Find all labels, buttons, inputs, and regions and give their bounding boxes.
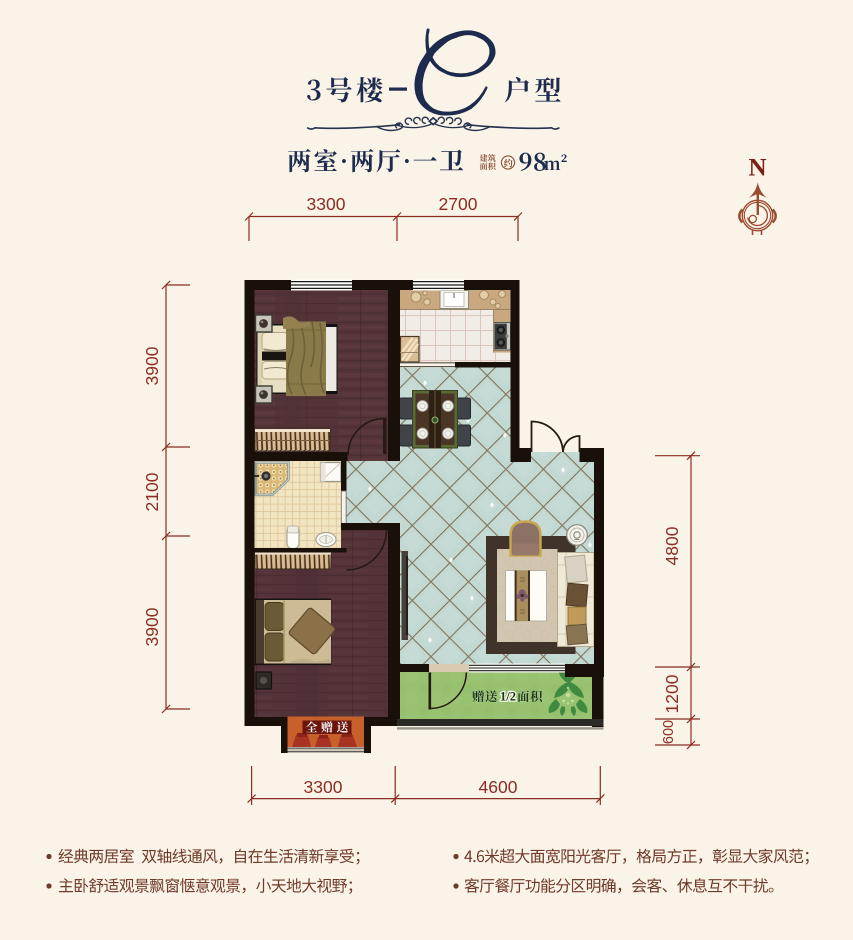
- svg-text:2100: 2100: [142, 472, 162, 511]
- svg-text:3900: 3900: [142, 346, 162, 385]
- svg-text:1200: 1200: [662, 674, 682, 713]
- svg-text:600: 600: [661, 720, 677, 744]
- svg-text:3900: 3900: [142, 607, 162, 646]
- svg-text:1/2: 1/2: [500, 690, 516, 704]
- svg-text:N: N: [749, 155, 767, 182]
- svg-text:4600: 4600: [479, 777, 518, 797]
- svg-text:4800: 4800: [662, 526, 682, 565]
- svg-text:3300: 3300: [304, 777, 343, 797]
- svg-text:3300: 3300: [307, 194, 346, 214]
- svg-text:2700: 2700: [439, 194, 478, 214]
